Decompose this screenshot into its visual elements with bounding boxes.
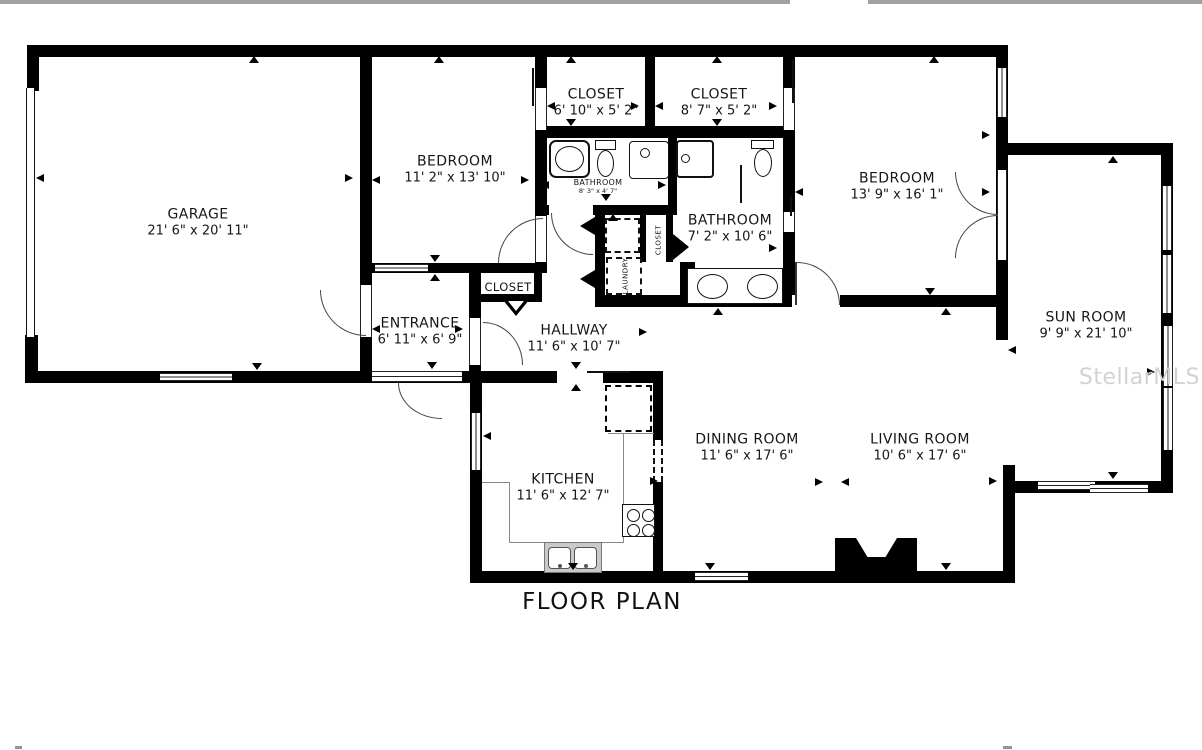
door-opening <box>783 212 795 232</box>
toilet-icon <box>751 140 774 149</box>
wall <box>645 45 655 138</box>
room-label-bedroom1: BEDROOM11' 2" x 13' 10" <box>404 154 505 187</box>
marker-down-icon <box>252 363 262 370</box>
room-label-laundry: LAUNDRY <box>622 258 631 295</box>
room-dimensions: 11' 2" x 13' 10" <box>404 171 505 187</box>
marker-up-icon <box>608 214 618 221</box>
marker-down-icon <box>427 362 437 369</box>
room-label-kitchen: KITCHEN11' 6" x 12' 7" <box>517 472 610 505</box>
room-label-bathroom2: BATHROOM7' 2" x 10' 6" <box>688 213 773 246</box>
room-dimensions: 6' 10" x 5' 2" <box>554 104 639 120</box>
marker-up-icon <box>434 56 444 63</box>
bifold-door-icon <box>673 234 689 260</box>
window <box>1090 484 1148 493</box>
room-dimensions: 11' 6" x 10' 7" <box>528 340 621 356</box>
room-dimensions: 13' 9" x 16' 1" <box>851 188 944 204</box>
pocket-door-line <box>790 196 792 216</box>
marker-left-icon <box>795 188 803 196</box>
closet-slider-line <box>532 68 534 106</box>
marker-up-icon <box>712 56 722 63</box>
room-name: HALLWAY <box>528 323 621 340</box>
window <box>372 371 462 382</box>
door-arc <box>320 290 366 336</box>
marker-right-icon <box>815 478 823 486</box>
door-opening <box>535 88 547 130</box>
floor-plan-drawing: GARAGE21' 6" x 20' 11"BEDROOM11' 2" x 13… <box>0 0 1202 750</box>
marker-right-icon <box>521 176 529 184</box>
marker-up-icon <box>249 56 259 63</box>
room-name: LIVING ROOM <box>870 432 970 449</box>
shelf-line <box>587 371 630 373</box>
floor-plan-page: GARAGE21' 6" x 20' 11"BEDROOM11' 2" x 13… <box>0 0 1202 750</box>
marker-right-icon <box>658 181 666 189</box>
sink-drain <box>640 148 650 158</box>
counter-line <box>608 433 654 434</box>
wall <box>666 215 673 262</box>
marker-left-icon <box>36 174 44 182</box>
stove-burner <box>627 509 640 522</box>
room-name: GARAGE <box>147 207 248 224</box>
room-dimensions: 8' 7" x 5' 2" <box>681 104 757 120</box>
marker-down-icon <box>568 563 578 570</box>
marker-left-icon <box>1008 346 1016 354</box>
marker-down-icon <box>925 288 935 295</box>
stove-burner <box>642 524 655 537</box>
bifold-door-inner <box>508 301 524 311</box>
room-name: CLOSET <box>554 87 639 104</box>
marker-left-icon <box>541 181 549 189</box>
marker-left-icon <box>483 432 491 440</box>
stove-burner <box>642 509 655 522</box>
marker-right-icon <box>345 174 353 182</box>
room-dimensions: 11' 6" x 17' 6" <box>695 449 799 465</box>
sink-vanity-icon <box>629 141 669 179</box>
refrigerator-outline <box>605 385 652 432</box>
wall <box>1008 143 1173 155</box>
sink-dot <box>584 564 588 568</box>
french-door-leaf <box>997 215 1007 260</box>
marker-right-icon <box>989 477 997 485</box>
marker-up-icon <box>571 384 581 391</box>
door-arc <box>398 383 442 419</box>
door-arc <box>955 215 998 258</box>
window <box>997 68 1007 117</box>
room-label-closet2: CLOSET8' 7" x 5' 2" <box>681 87 757 120</box>
watermark: StellarMLS <box>1079 365 1200 390</box>
room-dimensions: 6' 11" x 6' 9" <box>378 333 463 349</box>
door-arc <box>797 262 840 305</box>
room-label-closet1: CLOSET6' 10" x 5' 2" <box>554 87 639 120</box>
marker-right-icon <box>650 477 658 485</box>
room-label-garage: GARAGE21' 6" x 20' 11" <box>147 207 248 240</box>
shower-glass-line <box>740 165 742 203</box>
door-arc <box>955 172 998 215</box>
room-name: BATHROOM <box>688 213 773 230</box>
marker-down-icon <box>941 563 951 570</box>
room-label-sunroom: SUN ROOM9' 9" x 21' 10" <box>1040 310 1133 343</box>
window <box>695 572 748 581</box>
room-label-hallway: HALLWAY11' 6" x 10' 7" <box>528 323 621 356</box>
plan-title: FLOOR PLAN <box>522 589 682 615</box>
room-label-dining: DINING ROOM11' 6" x 17' 6" <box>695 432 799 465</box>
room-name: BEDROOM <box>404 154 505 171</box>
marker-right-icon <box>769 102 777 110</box>
room-name: CLOSET <box>484 280 531 294</box>
marker-up-icon <box>929 56 939 63</box>
room-label-living: LIVING ROOM10' 6" x 17' 6" <box>870 432 970 465</box>
stove-burner <box>627 524 640 537</box>
garage-door <box>26 88 35 337</box>
room-name: BEDROOM <box>851 171 944 188</box>
wall <box>640 210 646 262</box>
artifact-speck <box>15 746 22 749</box>
room-dimensions: 10' 6" x 17' 6" <box>870 449 970 465</box>
room-name: CLOSET <box>655 225 664 255</box>
room-dimensions: 9' 9" x 21' 10" <box>1040 327 1133 343</box>
window <box>1162 186 1172 250</box>
room-dimensions: 21' 6" x 20' 11" <box>147 224 248 240</box>
marker-down-icon <box>712 119 722 126</box>
room-dimensions: 8' 3" x 4' 7" <box>574 188 623 196</box>
room-name: CLOSET <box>681 87 757 104</box>
bifold-door-icon <box>580 267 600 291</box>
wall <box>27 45 39 91</box>
toilet-bowl <box>597 150 614 177</box>
room-dimensions: 7' 2" x 10' 6" <box>688 230 773 246</box>
window <box>160 373 232 381</box>
marker-up-icon <box>566 56 576 63</box>
room-name: SUN ROOM <box>1040 310 1133 327</box>
artifact-speck <box>1003 746 1012 749</box>
vanity-sink <box>697 274 728 299</box>
door-leaf <box>795 262 797 305</box>
french-door-leaf <box>997 170 1007 215</box>
room-name: ENTRANCE <box>378 316 463 333</box>
marker-right-icon <box>982 131 990 139</box>
marker-left-icon <box>655 102 663 110</box>
counter-line <box>509 482 510 543</box>
room-label-closet-small: CLOSET <box>655 225 664 255</box>
bathtub-basin <box>555 146 584 172</box>
room-name: LAUNDRY <box>622 258 631 295</box>
wall <box>27 45 1008 57</box>
window <box>1162 255 1172 313</box>
room-label-entrance: ENTRANCE6' 11" x 6' 9" <box>378 316 463 349</box>
marker-down-icon <box>1108 472 1118 479</box>
door-arc <box>498 218 543 263</box>
marker-up-icon <box>713 308 723 315</box>
room-name: KITCHEN <box>517 472 610 489</box>
marker-up-icon <box>1108 156 1118 163</box>
window <box>375 264 428 272</box>
marker-left-icon <box>372 176 380 184</box>
marker-down-icon <box>430 255 440 262</box>
counter-line <box>482 482 510 483</box>
bifold-door-icon <box>580 214 600 238</box>
window <box>471 413 481 470</box>
door-arc <box>483 322 523 365</box>
sink-dot <box>558 564 562 568</box>
room-label-bathroom1: BATHROOM8' 3" x 4' 7" <box>574 178 623 196</box>
marker-up-icon <box>430 274 440 281</box>
window <box>1038 481 1095 490</box>
room-dimensions: 11' 6" x 12' 7" <box>517 489 610 505</box>
room-label-bedroom2: BEDROOM13' 9" x 16' 1" <box>851 171 944 204</box>
toilet-bowl <box>754 149 772 177</box>
toilet-icon <box>595 140 616 150</box>
marker-down-icon <box>571 362 581 369</box>
closet-slider-line <box>792 60 794 103</box>
room-label-closet-hall: CLOSET <box>484 280 531 294</box>
marker-up-icon <box>941 308 951 315</box>
marker-left-icon <box>841 478 849 486</box>
door-opening <box>469 318 481 365</box>
marker-right-icon <box>639 328 647 336</box>
marker-down-icon <box>566 119 576 126</box>
window <box>1163 388 1173 450</box>
washer-outline <box>605 218 640 253</box>
vanity-sink <box>747 274 778 299</box>
marker-right-icon <box>982 188 990 196</box>
wall <box>535 126 795 138</box>
marker-down-icon <box>705 563 715 570</box>
room-name: DINING ROOM <box>695 432 799 449</box>
pass-through-opening <box>653 440 663 482</box>
shower-drain <box>681 154 690 163</box>
